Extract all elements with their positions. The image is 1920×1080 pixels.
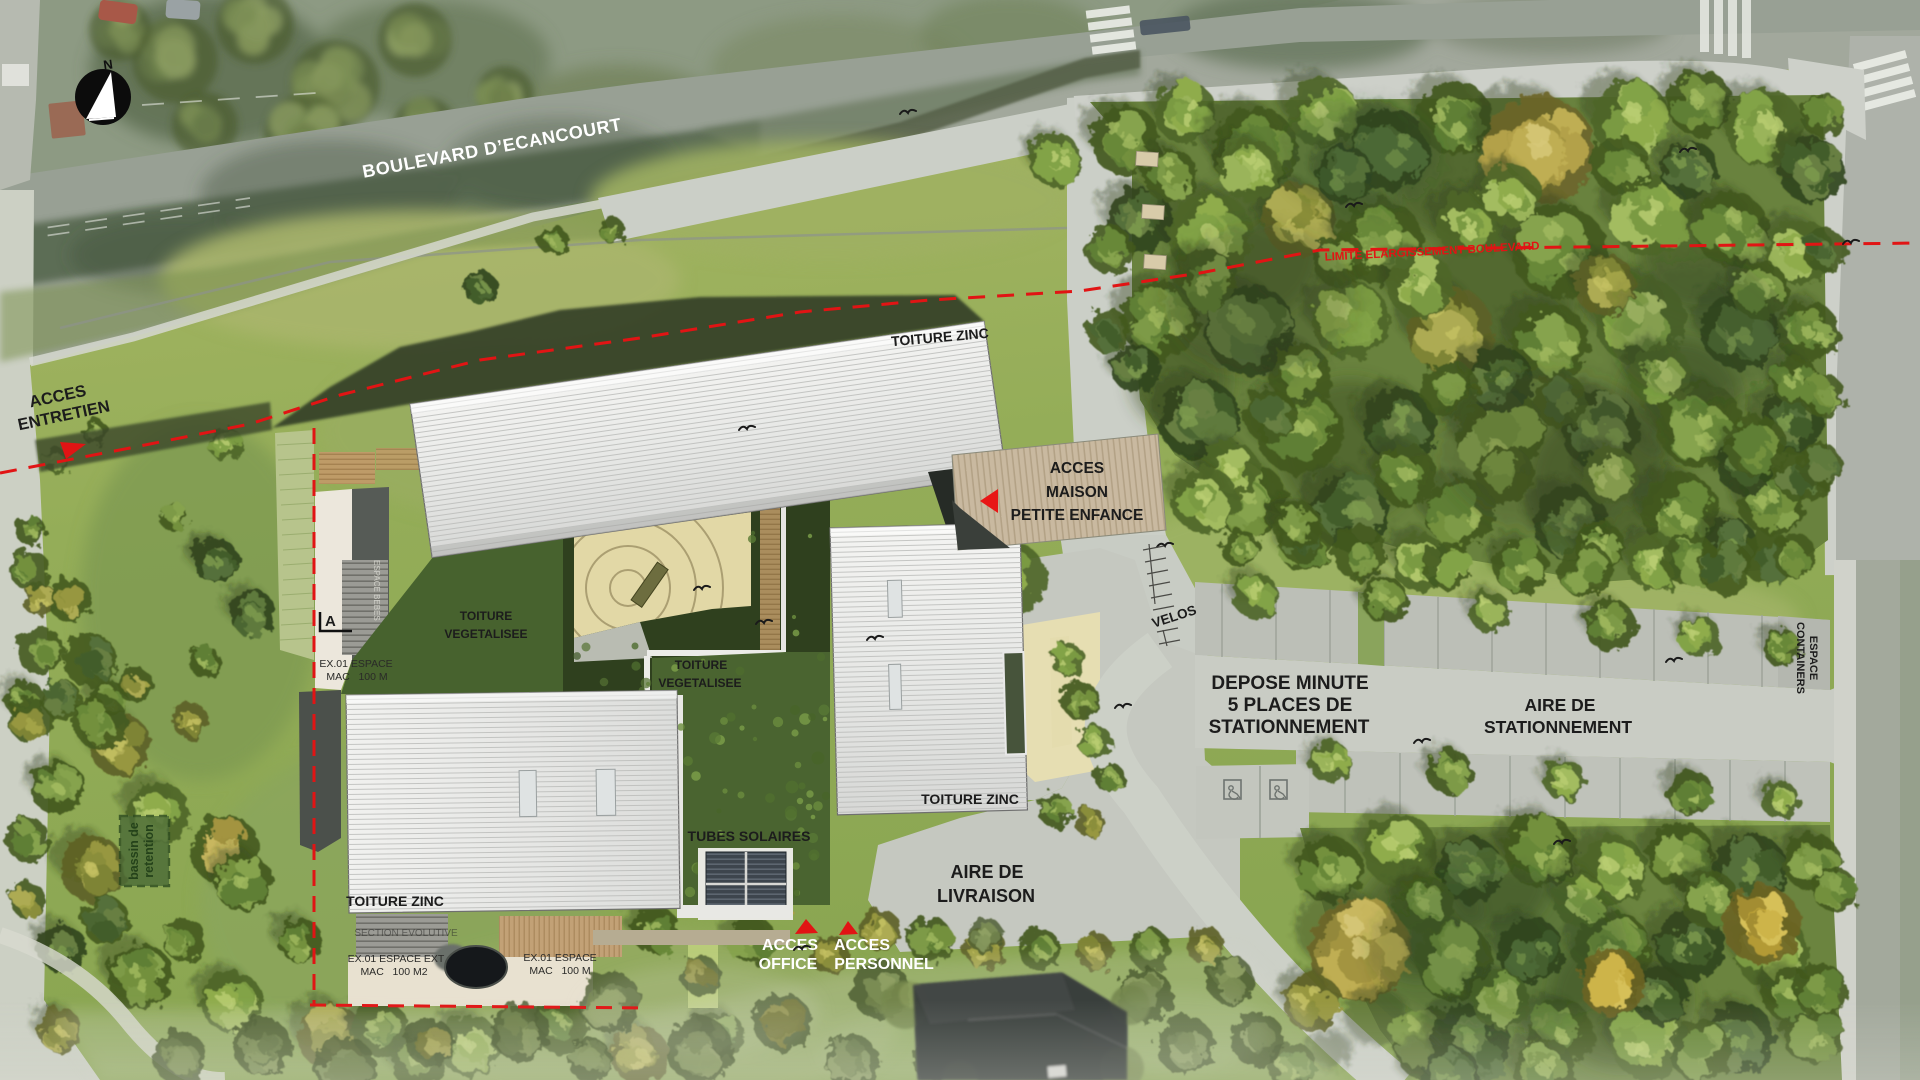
svg-text:ESPACE: ESPACE — [1807, 636, 1819, 680]
svg-text:EX.01 ESPACE: EX.01 ESPACE — [523, 952, 596, 964]
svg-text:TOITURE ZINC: TOITURE ZINC — [921, 791, 1019, 807]
svg-text:ACCES: ACCES — [834, 937, 890, 954]
svg-text:TOITURE: TOITURE — [460, 609, 512, 623]
svg-text:A: A — [325, 613, 336, 630]
svg-text:ACCES: ACCES — [762, 937, 818, 954]
svg-text:TOITURE: TOITURE — [675, 658, 727, 672]
svg-text:AIRE DE: AIRE DE — [950, 862, 1023, 882]
svg-text:5 PLACES DE: 5 PLACES DE — [1228, 695, 1353, 716]
svg-text:STATIONNEMENT: STATIONNEMENT — [1484, 717, 1632, 737]
svg-text:SECTION EVOLUTIVE: SECTION EVOLUTIVE — [354, 928, 458, 939]
svg-text:EX.01 ESPACE: EX.01 ESPACE — [319, 658, 392, 670]
svg-text:AIRE DE: AIRE DE — [1525, 695, 1596, 715]
svg-text:PERSONNEL: PERSONNEL — [834, 956, 934, 973]
svg-text:STATIONNEMENT: STATIONNEMENT — [1209, 717, 1370, 738]
svg-text:TUBES SOLAIRES: TUBES SOLAIRES — [688, 828, 811, 844]
svg-text:MAISON: MAISON — [1046, 484, 1108, 501]
svg-text:MAC 100 M: MAC 100 M — [326, 671, 387, 683]
svg-text:TOITURE ZINC: TOITURE ZINC — [346, 893, 444, 909]
svg-text:LIVRAISON: LIVRAISON — [937, 886, 1035, 906]
svg-text:CONTAINERS: CONTAINERS — [1794, 622, 1806, 694]
svg-text:PETITE ENFANCE: PETITE ENFANCE — [1011, 507, 1144, 524]
svg-text:VEGETALISEE: VEGETALISEE — [658, 676, 741, 690]
svg-text:DEPOSE MINUTE: DEPOSE MINUTE — [1211, 673, 1368, 694]
svg-text:VEGETALISEE: VEGETALISEE — [444, 627, 527, 641]
svg-text:ACCES: ACCES — [1050, 460, 1104, 477]
svg-text:OFFICE: OFFICE — [759, 956, 818, 973]
svg-text:ESPACE BEBES: ESPACE BEBES — [372, 560, 381, 621]
svg-text:bassin de: bassin de — [127, 822, 141, 880]
svg-text:EX.01 ESPACE EXT: EX.01 ESPACE EXT — [348, 953, 445, 965]
svg-text:MAC 100 M: MAC 100 M — [529, 965, 590, 977]
svg-text:MAC 100 M2: MAC 100 M2 — [360, 966, 427, 978]
svg-text:retention: retention — [142, 824, 156, 877]
